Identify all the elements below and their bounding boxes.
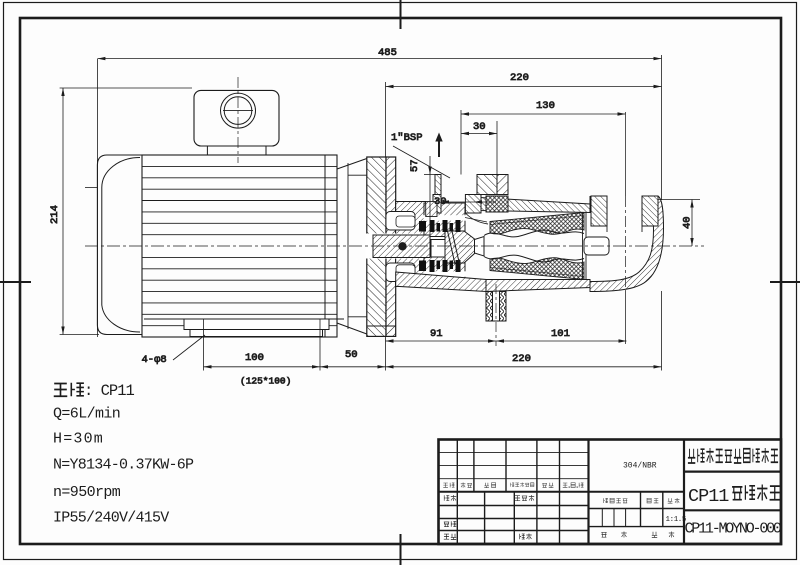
- svg-text:101: 101: [551, 328, 570, 340]
- svg-text:CP11-MOYNO-000: CP11-MOYNO-000: [685, 521, 782, 538]
- svg-text:40: 40: [682, 216, 694, 229]
- svg-text:304/NBR: 304/NBR: [623, 462, 657, 471]
- svg-text:(125*100): (125*100): [240, 376, 291, 387]
- svg-text:H=30m: H=30m: [53, 431, 104, 448]
- svg-text:1:1.5: 1:1.5: [666, 516, 687, 524]
- svg-text:214: 214: [49, 205, 61, 224]
- svg-text:220: 220: [512, 353, 531, 365]
- svg-text:100: 100: [245, 352, 264, 364]
- svg-text:CP11: CP11: [688, 486, 729, 507]
- svg-text:4-φ8: 4-φ8: [142, 354, 167, 366]
- svg-text:50: 50: [345, 349, 358, 361]
- svg-text:91: 91: [430, 328, 443, 340]
- svg-text:130: 130: [536, 100, 555, 112]
- svg-text:N=Y8134-0.37KW-6P: N=Y8134-0.37KW-6P: [53, 457, 194, 474]
- svg-text:30: 30: [473, 121, 486, 133]
- svg-text:n=950rpm: n=950rpm: [53, 484, 121, 501]
- svg-text:IP55/240V/415V: IP55/240V/415V: [53, 510, 169, 527]
- svg-text:485: 485: [378, 47, 397, 59]
- svg-text:57: 57: [409, 159, 421, 172]
- svg-text:1"BSP: 1"BSP: [391, 132, 423, 144]
- svg-text:220: 220: [510, 72, 529, 84]
- svg-text:: CP11: : CP11: [84, 382, 135, 400]
- svg-text:Q=6L/min: Q=6L/min: [53, 406, 120, 423]
